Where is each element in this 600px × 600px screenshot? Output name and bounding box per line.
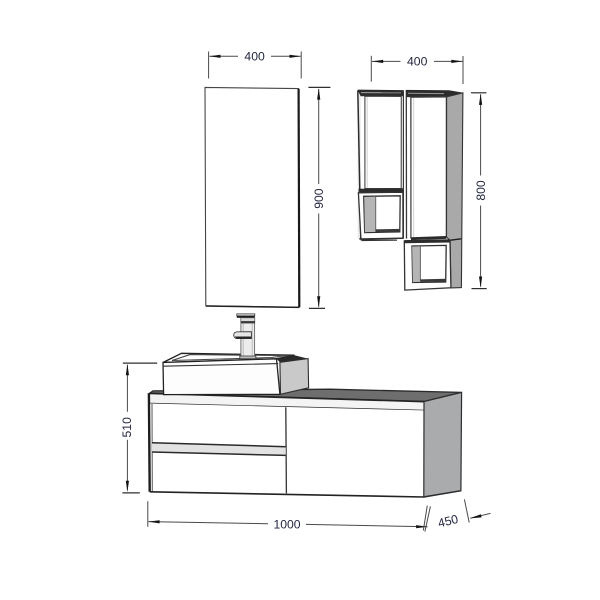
svg-text:400: 400 [244, 50, 265, 64]
svg-text:1000: 1000 [273, 517, 300, 531]
svg-text:510: 510 [120, 417, 134, 438]
svg-text:900: 900 [312, 188, 326, 209]
svg-text:400: 400 [407, 55, 428, 69]
svg-text:800: 800 [474, 180, 488, 201]
